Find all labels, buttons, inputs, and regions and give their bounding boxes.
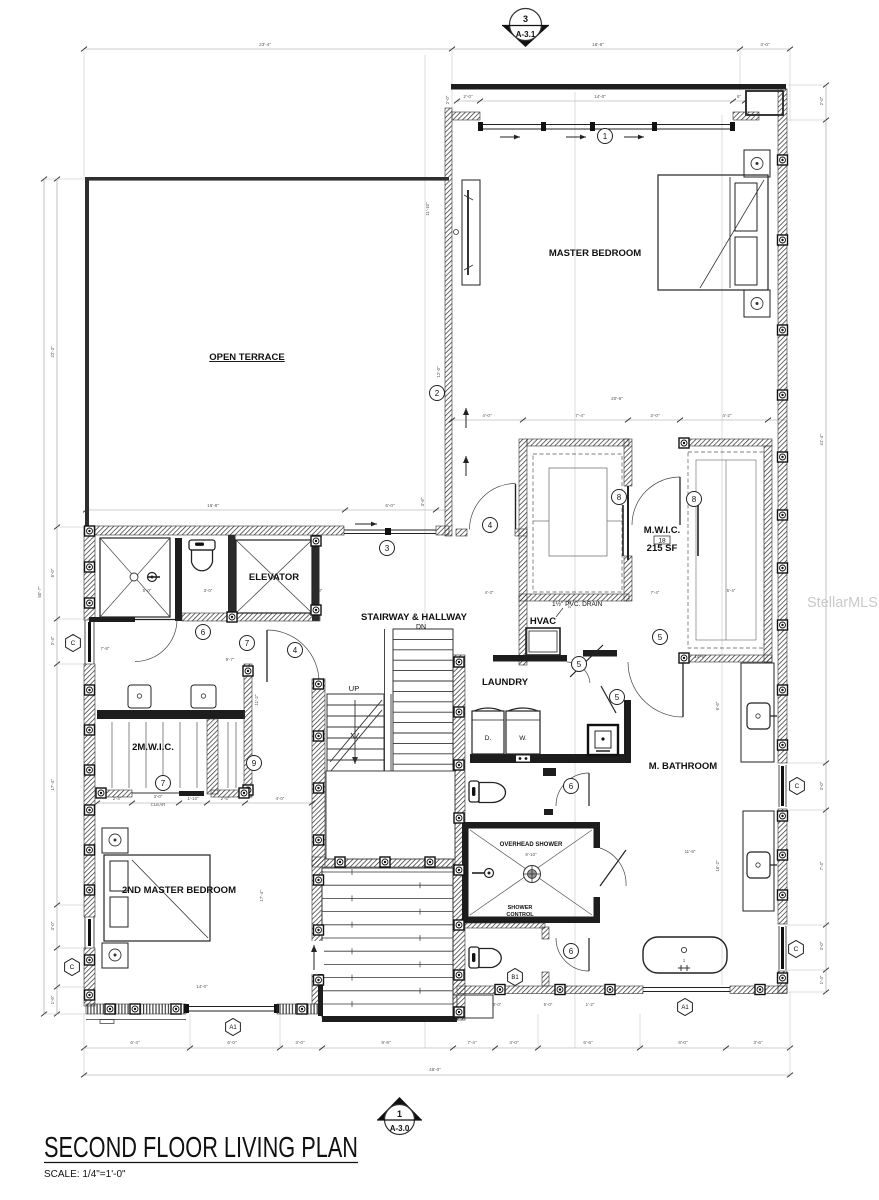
svg-text:ELEVATOR: ELEVATOR (249, 572, 299, 583)
svg-text:C: C (794, 946, 799, 953)
svg-text:4'-3": 4'-3" (485, 590, 494, 595)
svg-text:7'-4": 7'-4" (819, 861, 824, 870)
svg-text:6": 6" (737, 94, 742, 99)
svg-text:SCALE: 1/4"=1'-0": SCALE: 1/4"=1'-0" (44, 1169, 126, 1180)
svg-text:HVAC: HVAC (530, 616, 556, 627)
svg-text:4'-2": 4'-2" (722, 413, 732, 418)
svg-text:1'-2": 1'-2" (586, 1002, 595, 1007)
svg-text:5: 5 (577, 660, 582, 669)
svg-text:16'-2": 16'-2" (715, 860, 720, 872)
svg-text:20'-6": 20'-6" (611, 396, 623, 401)
svg-text:11'-8": 11'-8" (685, 849, 696, 854)
svg-text:A1: A1 (229, 1025, 237, 1031)
svg-text:5'-4": 5'-4" (727, 588, 736, 593)
svg-text:9'-8": 9'-8" (381, 1040, 391, 1045)
svg-text:16'-8": 16'-8" (207, 503, 219, 508)
svg-text:6'-0": 6'-0" (50, 568, 55, 577)
svg-text:3'-6": 3'-6" (753, 1040, 763, 1045)
svg-text:6'-4": 6'-4" (130, 1040, 140, 1045)
svg-text:CLEAR: CLEAR (151, 802, 166, 807)
svg-text:1'-10": 1'-10" (187, 796, 199, 801)
svg-text:3'-4": 3'-4" (50, 636, 55, 645)
svg-text:7'-4": 7'-4" (575, 413, 585, 418)
svg-text:3'-0": 3'-0" (760, 42, 770, 47)
svg-text:23'-4": 23'-4" (259, 42, 271, 47)
svg-text:6: 6 (201, 628, 206, 637)
svg-text:2: 2 (435, 389, 440, 398)
svg-text:8: 8 (692, 495, 697, 504)
svg-text:2'-0": 2'-0" (819, 96, 824, 105)
svg-text:1: 1 (603, 132, 608, 141)
svg-text:7'-4": 7'-4" (651, 590, 660, 595)
svg-text:8'-10": 8'-10" (525, 852, 537, 857)
svg-text:C: C (71, 640, 76, 647)
svg-text:3'-0": 3'-0" (295, 1040, 305, 1045)
svg-text:41'-4": 41'-4" (819, 434, 824, 446)
svg-text:5: 5 (658, 633, 663, 642)
svg-text:2ND MASTER BEDROOM: 2ND MASTER BEDROOM (122, 885, 236, 896)
svg-text:11'-2": 11'-2" (254, 694, 259, 705)
svg-text:3: 3 (385, 544, 390, 553)
svg-text:7: 7 (245, 639, 250, 648)
svg-text:14'-0": 14'-0" (196, 984, 208, 989)
svg-text:11'-10": 11'-10" (425, 202, 430, 216)
svg-text:6: 6 (569, 947, 574, 956)
svg-text:1½" PVC. DRAIN: 1½" PVC. DRAIN (552, 600, 603, 608)
svg-text:2'-0": 2'-0" (463, 94, 473, 99)
svg-text:14'-0": 14'-0" (594, 94, 606, 99)
svg-text:7: 7 (161, 779, 166, 788)
svg-text:6: 6 (569, 782, 574, 791)
svg-text:12'-0": 12'-0" (436, 366, 441, 378)
svg-text:2'-0": 2'-0" (445, 95, 450, 104)
svg-text:OPEN TERRACE: OPEN TERRACE (209, 352, 284, 363)
svg-text:9: 9 (252, 759, 257, 768)
svg-text:17'-4": 17'-4" (259, 890, 264, 902)
svg-text:5'-0": 5'-0" (143, 588, 152, 593)
svg-text:4: 4 (293, 646, 298, 655)
svg-text:17'-4": 17'-4" (50, 779, 55, 791)
svg-text:3'-0": 3'-0" (650, 413, 660, 418)
svg-text:7'-8": 7'-8" (101, 646, 110, 651)
svg-text:6'-0": 6'-0" (227, 1040, 237, 1045)
svg-text:3: 3 (523, 14, 528, 24)
svg-text:OVERHEAD SHOWER: OVERHEAD SHOWER (500, 842, 563, 848)
svg-text:M.W.I.C.: M.W.I.C. (644, 525, 680, 536)
svg-text:DN: DN (416, 624, 426, 631)
svg-text:1'-6": 1'-6" (50, 995, 55, 1004)
svg-text:C: C (795, 783, 800, 790)
svg-text:UP: UP (349, 684, 359, 693)
svg-text:6'-0": 6'-0" (678, 1040, 688, 1045)
svg-text:3'-0": 3'-0" (50, 921, 55, 930)
svg-text:1'-4": 1'-4" (819, 975, 824, 984)
svg-text:MASTER BEDROOM: MASTER BEDROOM (549, 248, 641, 259)
svg-text:StellarMLS: StellarMLS (807, 595, 878, 611)
svg-text:A-3.0: A-3.0 (390, 1124, 410, 1133)
svg-text:8: 8 (617, 493, 622, 502)
svg-text:7'-4": 7'-4" (467, 1040, 477, 1045)
svg-text:B1: B1 (511, 975, 519, 981)
svg-text:3'-0": 3'-0" (154, 794, 163, 799)
svg-text:6'-6": 6'-6" (583, 1040, 593, 1045)
svg-text:3'-0": 3'-0" (819, 941, 824, 950)
svg-text:6'-0": 6'-0" (385, 503, 395, 508)
svg-text:SECOND FLOOR LIVING PLAN: SECOND FLOOR LIVING PLAN (44, 1132, 358, 1164)
svg-text:215 SF: 215 SF (647, 543, 678, 554)
svg-text:18'-6": 18'-6" (592, 42, 604, 47)
svg-text:9'-7": 9'-7" (226, 657, 235, 662)
svg-text:C: C (70, 964, 75, 971)
svg-text:A1: A1 (681, 1005, 689, 1011)
svg-text:45'-0": 45'-0" (429, 1067, 441, 1072)
svg-text:22'-3": 22'-3" (50, 346, 55, 358)
svg-text:50'-7": 50'-7" (37, 586, 42, 598)
svg-text:A-3.1: A-3.1 (516, 30, 536, 39)
svg-text:6'-6": 6'-6" (715, 701, 720, 710)
svg-text:3'-0": 3'-0" (509, 1040, 519, 1045)
svg-text:LAUNDRY: LAUNDRY (482, 677, 529, 688)
svg-text:3'-6": 3'-6" (420, 497, 425, 506)
svg-text:5'-0": 5'-0" (544, 1002, 553, 1007)
svg-text:4'-0": 4'-0" (276, 796, 285, 801)
svg-text:1: 1 (397, 1109, 402, 1119)
svg-text:SHOWER: SHOWER (508, 905, 533, 911)
svg-text:CONTROL: CONTROL (506, 912, 534, 918)
svg-text:4: 4 (488, 521, 493, 530)
svg-text:4'-0": 4'-0" (482, 413, 492, 418)
svg-text:M. BATHROOM: M. BATHROOM (649, 761, 718, 772)
svg-text:2M.W.I.C.: 2M.W.I.C. (132, 742, 174, 753)
svg-text:W.: W. (519, 735, 527, 742)
svg-text:3'-0": 3'-0" (493, 1002, 502, 1007)
svg-text:3'-0": 3'-0" (819, 781, 824, 790)
svg-text:STAIRWAY & HALLWAY: STAIRWAY & HALLWAY (361, 612, 468, 623)
svg-text:3'-0": 3'-0" (204, 588, 213, 593)
svg-text:D.: D. (485, 735, 492, 742)
svg-text:5: 5 (615, 693, 620, 702)
